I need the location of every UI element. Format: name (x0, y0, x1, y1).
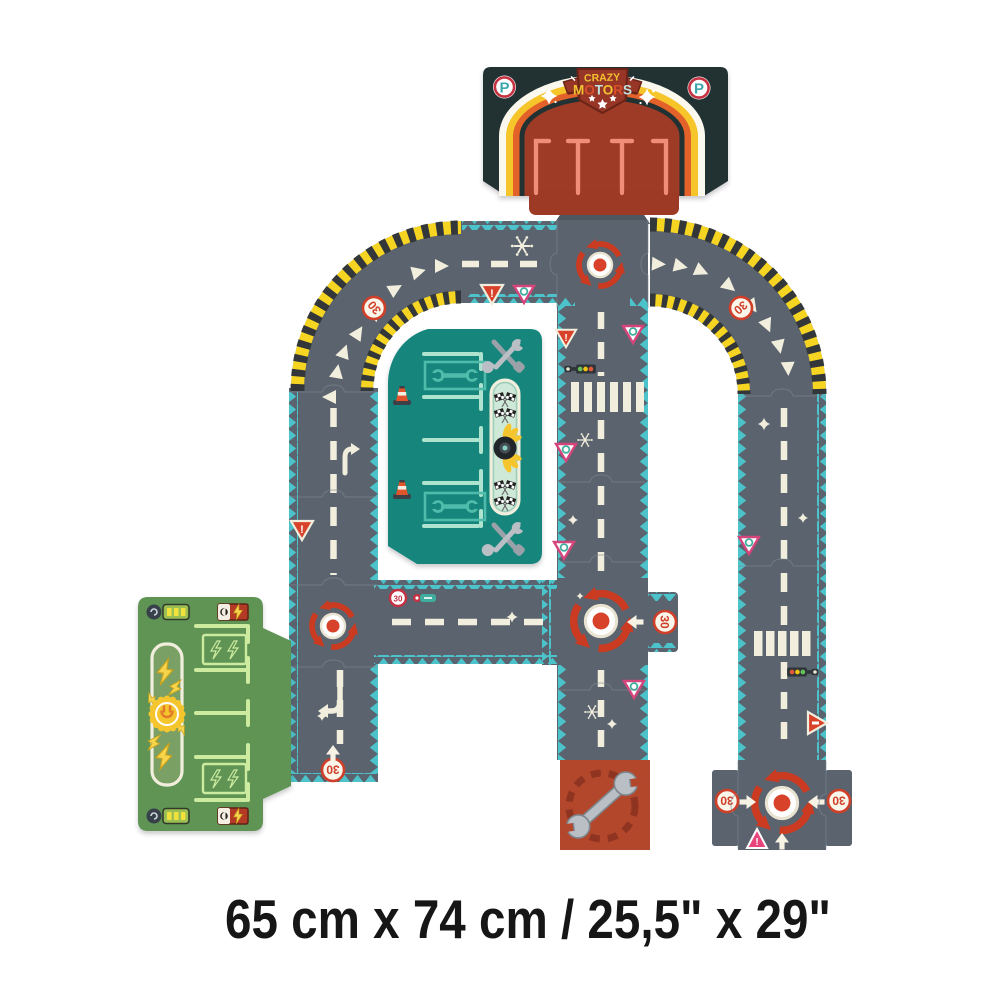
svg-text:MOTORS: MOTORS (573, 83, 632, 98)
svg-text:P: P (694, 81, 704, 98)
svg-text:P: P (499, 80, 509, 97)
svg-text:65 cm x 74 cm / 25,5" x 29": 65 cm x 74 cm / 25,5" x 29" (225, 888, 831, 950)
svg-text:30: 30 (394, 595, 403, 604)
svg-text:!: ! (755, 837, 758, 848)
